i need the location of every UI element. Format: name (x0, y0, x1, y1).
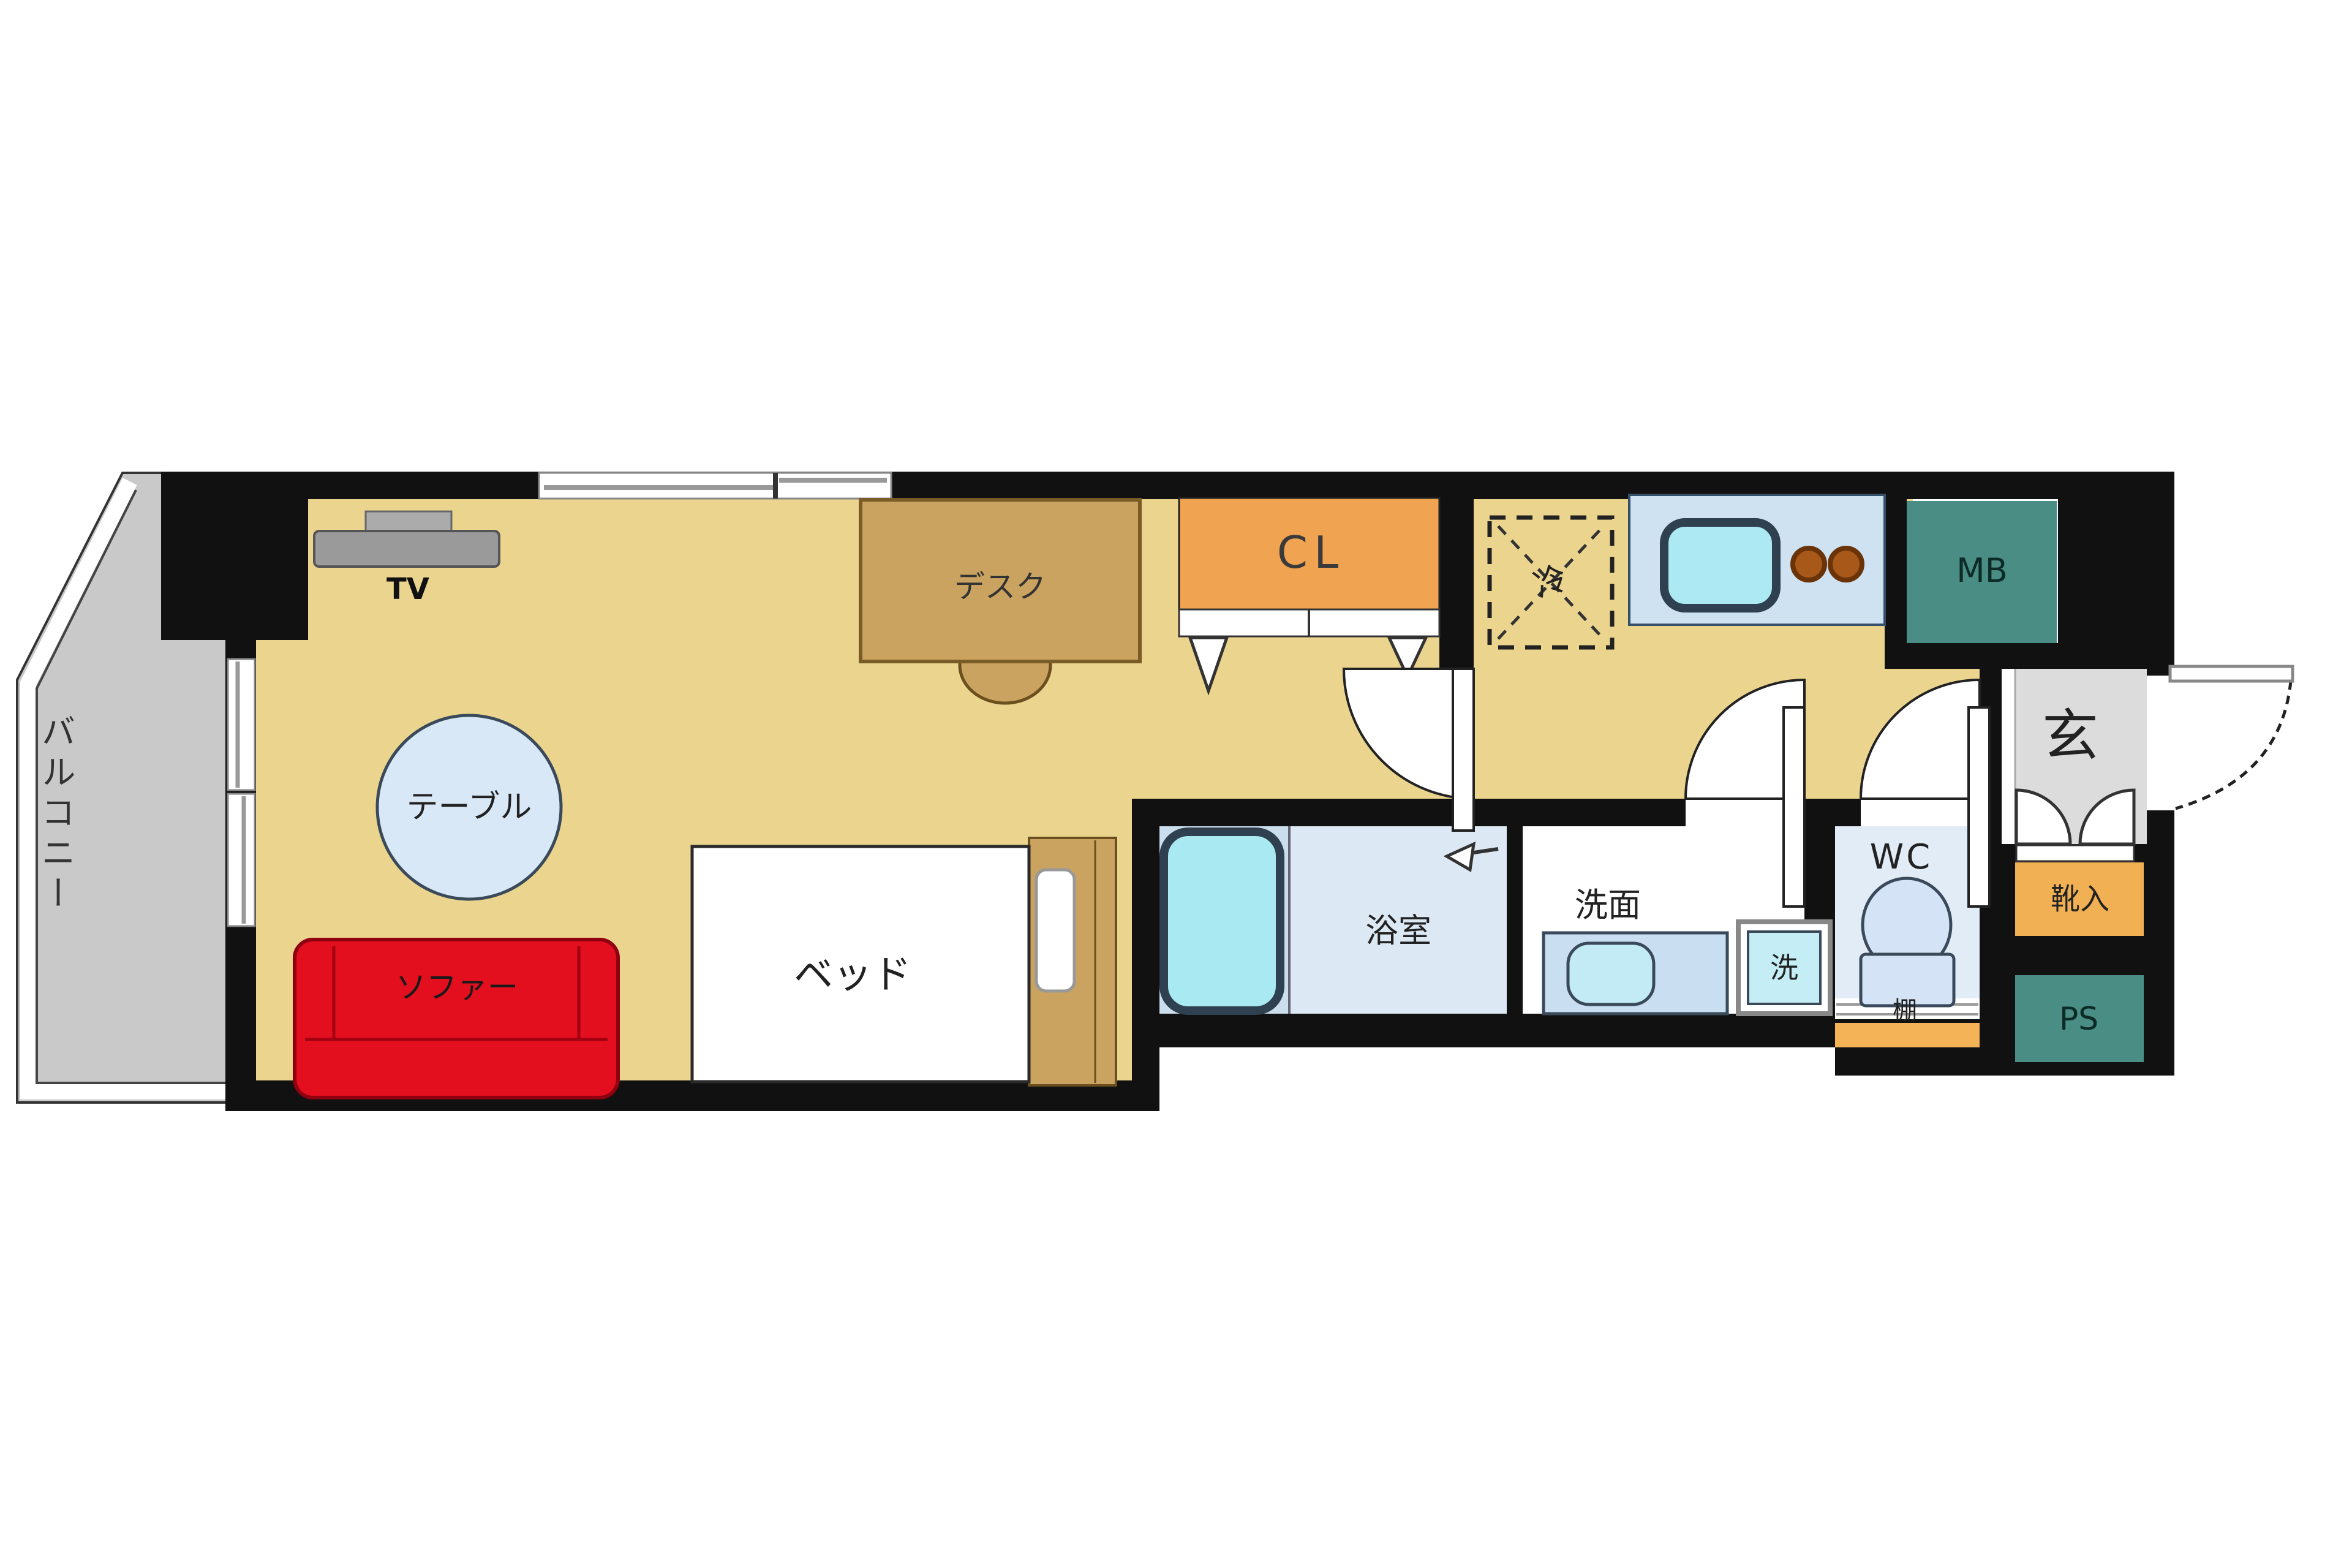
washroom-label: 洗面 (1575, 889, 1641, 922)
floor-plan-drawing (0, 0, 2352, 1568)
tv-screen (366, 511, 451, 532)
pipe-space-label: PS (2059, 1003, 2098, 1035)
entrance-step-strip (2002, 669, 2015, 844)
entrance-door-leaf (2170, 666, 2293, 681)
wall-bath-top-mid (1804, 799, 1861, 826)
sofa (295, 940, 618, 1098)
entrance-door (2170, 666, 2293, 809)
bathtub (1164, 832, 1280, 1011)
meter-box-label: MB (1956, 554, 2008, 587)
tv-label: TV (386, 575, 429, 604)
entrance-door-fan (2174, 681, 2291, 809)
window-balcony-lower (228, 794, 255, 926)
entrance-cabinet-strip (2016, 845, 2134, 861)
door-leaf-washroom (1784, 707, 1804, 907)
wall-topright-block (2058, 472, 2174, 669)
door-leaf-wc (1969, 707, 1989, 907)
balcony-label: バルコニー (38, 714, 72, 916)
wall-living-bath (1132, 799, 1159, 1111)
wall-right-lower (2147, 809, 2174, 1076)
wall-cl-stub (1439, 498, 1474, 669)
stove-burner-left-icon (1793, 548, 1825, 580)
wall-bath-bottom (1159, 1014, 1835, 1047)
table-label: テーブル (407, 791, 532, 823)
kitchen-sink (1664, 522, 1776, 608)
sofa-label: ソファー (396, 972, 518, 1003)
wc-shelf-label: 棚 (1893, 998, 1917, 1023)
shoe-cabinet-label: 靴入 (2051, 884, 2109, 914)
wall-topleft-block (161, 472, 308, 640)
wc-label: WC (1870, 840, 1932, 875)
vanity-unit (1543, 933, 1727, 1014)
wall-bath-top (1132, 799, 1686, 826)
washing-machine-label: 洗 (1770, 954, 1798, 982)
door-leaf-living (1453, 669, 1474, 831)
threshold-entrance (2147, 676, 2174, 810)
stove-burner-right-icon (1830, 548, 1862, 580)
threshold-wc (1861, 799, 1969, 826)
wall-mb-bottom-strip (1885, 643, 2058, 669)
floor-plan-page: バルコニー TV テーブル ソファー ベッド デスク CL 冷 MB 浴室 洗面… (0, 0, 2352, 1568)
wc-counter-orange (1835, 1023, 1980, 1047)
wall-bath-washroom (1507, 826, 1523, 1014)
toilet (1861, 878, 1954, 1006)
bathroom-label: 浴室 (1365, 914, 1431, 948)
closet-label: CL (1277, 530, 1344, 575)
wall-counter-right-strip (1885, 495, 1907, 669)
wall-wc-bottom (1835, 1047, 2002, 1076)
vanity-basin (1568, 943, 1654, 1005)
tv-stand (314, 531, 499, 567)
window-top-center-tick (773, 473, 778, 499)
bed-pillow (1036, 870, 1074, 991)
desk-label: デスク (954, 571, 1046, 602)
bed-label: ベッド (794, 956, 911, 995)
entrance-label: 玄 (2042, 708, 2098, 764)
sofa-body (295, 940, 618, 1098)
window-balcony-upper (228, 659, 255, 790)
